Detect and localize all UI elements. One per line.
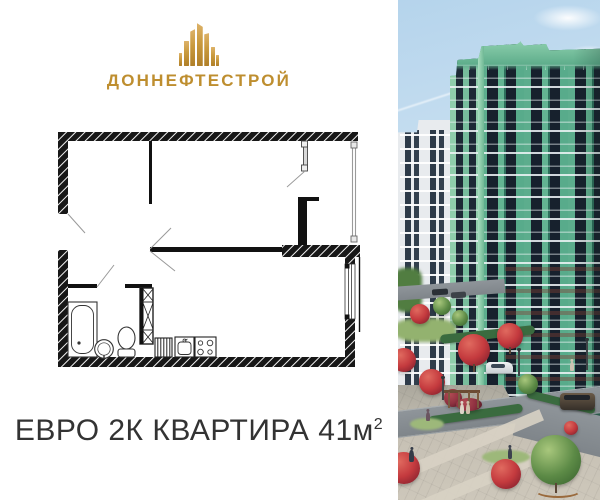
red-tree	[491, 459, 521, 489]
parked-car	[451, 291, 466, 298]
pergola-post	[477, 392, 479, 408]
building-render-photo	[398, 0, 600, 500]
caption-superscript: 2	[374, 416, 383, 433]
person	[460, 404, 464, 414]
floorplan-panel: ДОННЕФТЕСТРОЙ	[0, 0, 398, 500]
person	[508, 448, 512, 459]
person	[570, 362, 574, 371]
vent-shaft-icon	[140, 288, 153, 344]
white-car	[486, 362, 513, 373]
building-towers-icon	[169, 20, 229, 66]
interior-walls	[68, 141, 319, 288]
dark-suv	[560, 393, 595, 410]
green-tree	[433, 297, 451, 315]
lamp-post	[586, 340, 588, 370]
green-tree	[452, 310, 468, 326]
pergola-post	[448, 392, 450, 408]
brand-name: ДОННЕФТЕСТРОЙ	[0, 71, 398, 91]
person	[466, 404, 470, 414]
tree-trunk	[473, 364, 475, 372]
red-tree	[564, 421, 578, 435]
floor-plan-drawing	[58, 130, 365, 370]
cloud	[533, 5, 600, 31]
apartment-caption: ЕВРО 2К КВАРТИРА 41м2	[0, 414, 398, 448]
bench	[534, 482, 582, 498]
brand-logo: ДОННЕФТЕСТРОЙ	[0, 20, 398, 91]
red-tree	[458, 334, 490, 366]
glazing-icon	[351, 142, 357, 242]
green-tree	[518, 374, 538, 394]
pedestal-sink-icon	[95, 340, 114, 359]
red-tree	[410, 304, 430, 324]
lamp-post	[518, 350, 520, 376]
kitchen-sink-icon	[175, 337, 194, 357]
real-estate-card: ДОННЕФТЕСТРОЙ	[0, 0, 600, 500]
green-tree	[531, 435, 581, 485]
floor-plan	[58, 130, 365, 370]
toilet-icon	[118, 327, 135, 357]
person	[426, 412, 430, 421]
caption-text: ЕВРО 2К КВАРТИРА 41м	[15, 414, 374, 447]
radiator-icon	[155, 338, 172, 357]
person	[409, 450, 414, 462]
lamp-post	[442, 378, 444, 400]
stove-icon	[195, 337, 216, 357]
balcony-door-icon	[287, 141, 308, 187]
bathtub-icon	[68, 302, 97, 357]
tree-trunk	[509, 347, 511, 354]
parked-car	[432, 288, 448, 295]
red-tree	[497, 323, 523, 349]
